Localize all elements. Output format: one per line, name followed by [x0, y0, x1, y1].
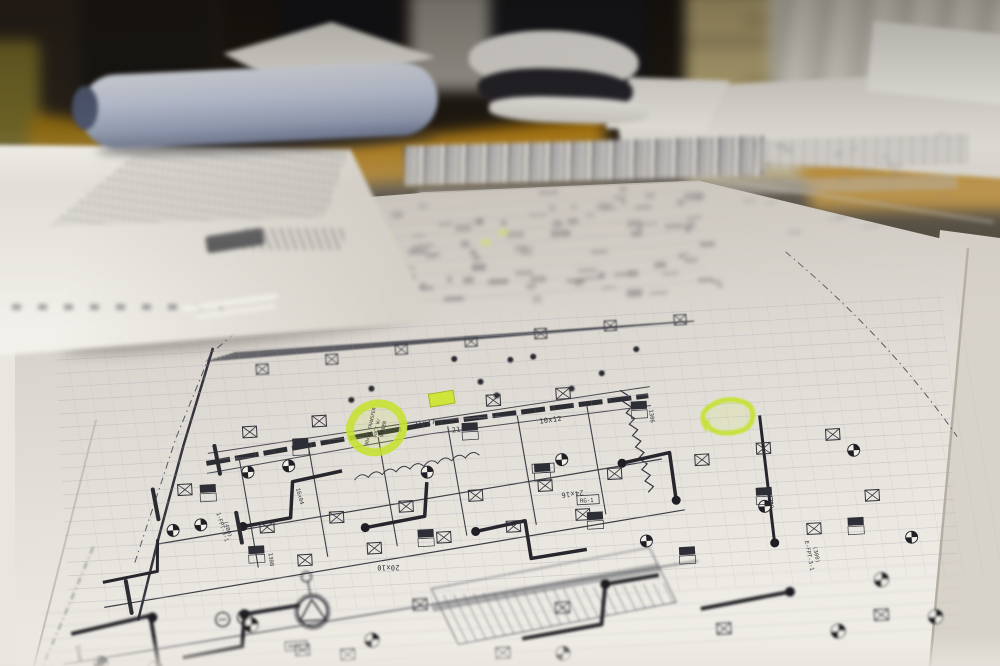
dense-plan-texture: [49, 148, 349, 226]
plan-booklet-stack: [0, 0, 1000, 400]
room-tag: [292, 438, 308, 447]
svg-text:RG-1: RG-1: [580, 498, 594, 505]
room-tag: [587, 511, 603, 520]
room-tag: [534, 463, 550, 472]
room-tag: [248, 545, 264, 554]
room-tag: [417, 529, 433, 538]
roll-end: [72, 86, 98, 130]
photo-blueprints-on-table: 21x27 10x12 24x16 20x10 16x04 21x22 1-FP…: [0, 0, 1000, 666]
plan-mark-row: [244, 228, 344, 250]
room-tag: [679, 546, 695, 555]
highlighter-scribble-mark: [702, 398, 754, 434]
room-tag: [847, 517, 863, 526]
booklet-top-sheet: [0, 136, 434, 356]
room-tag: [756, 487, 772, 496]
room-tag: [462, 422, 478, 431]
room-tag: [631, 401, 647, 410]
room-tag: [200, 484, 216, 493]
